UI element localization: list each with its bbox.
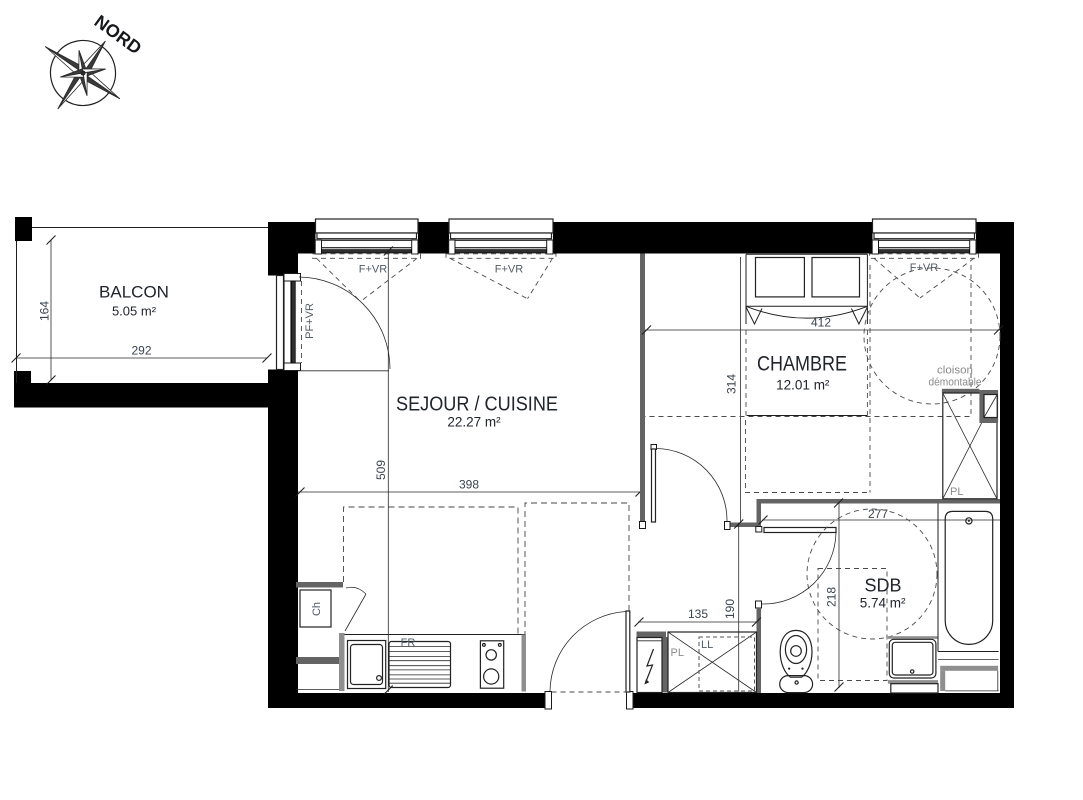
svg-text:12.01 m²: 12.01 m² [776, 378, 830, 393]
svg-text:F+VR: F+VR [910, 262, 938, 274]
svg-text:5.05 m²: 5.05 m² [112, 304, 157, 319]
svg-text:CHAMBRE: CHAMBRE [757, 352, 847, 376]
svg-text:cloison: cloison [937, 365, 973, 377]
svg-text:218: 218 [825, 587, 839, 607]
svg-text:LL: LL [701, 639, 713, 651]
svg-text:F+VR: F+VR [495, 264, 523, 276]
svg-text:277: 277 [868, 507, 888, 521]
svg-text:164: 164 [38, 301, 52, 321]
svg-text:509: 509 [374, 460, 388, 480]
svg-text:F+VR: F+VR [359, 264, 387, 276]
svg-text:SDB: SDB [864, 576, 901, 596]
svg-text:292: 292 [131, 344, 151, 358]
svg-text:Ch: Ch [311, 602, 323, 616]
svg-text:314: 314 [725, 374, 739, 394]
svg-text:22.27 m²: 22.27 m² [447, 415, 501, 430]
svg-text:135: 135 [688, 607, 708, 621]
svg-text:190: 190 [723, 599, 737, 619]
svg-text:5.74 m²: 5.74 m² [860, 596, 906, 611]
svg-text:démontable: démontable [929, 377, 982, 389]
svg-text:PL: PL [950, 486, 963, 498]
svg-text:SEJOUR / CUISINE: SEJOUR / CUISINE [396, 394, 558, 416]
svg-text:PF+VR: PF+VR [304, 303, 316, 339]
svg-text:PL: PL [671, 647, 684, 659]
svg-text:BALCON: BALCON [99, 283, 169, 302]
svg-text:398: 398 [459, 478, 479, 492]
svg-text:FR: FR [401, 637, 416, 649]
